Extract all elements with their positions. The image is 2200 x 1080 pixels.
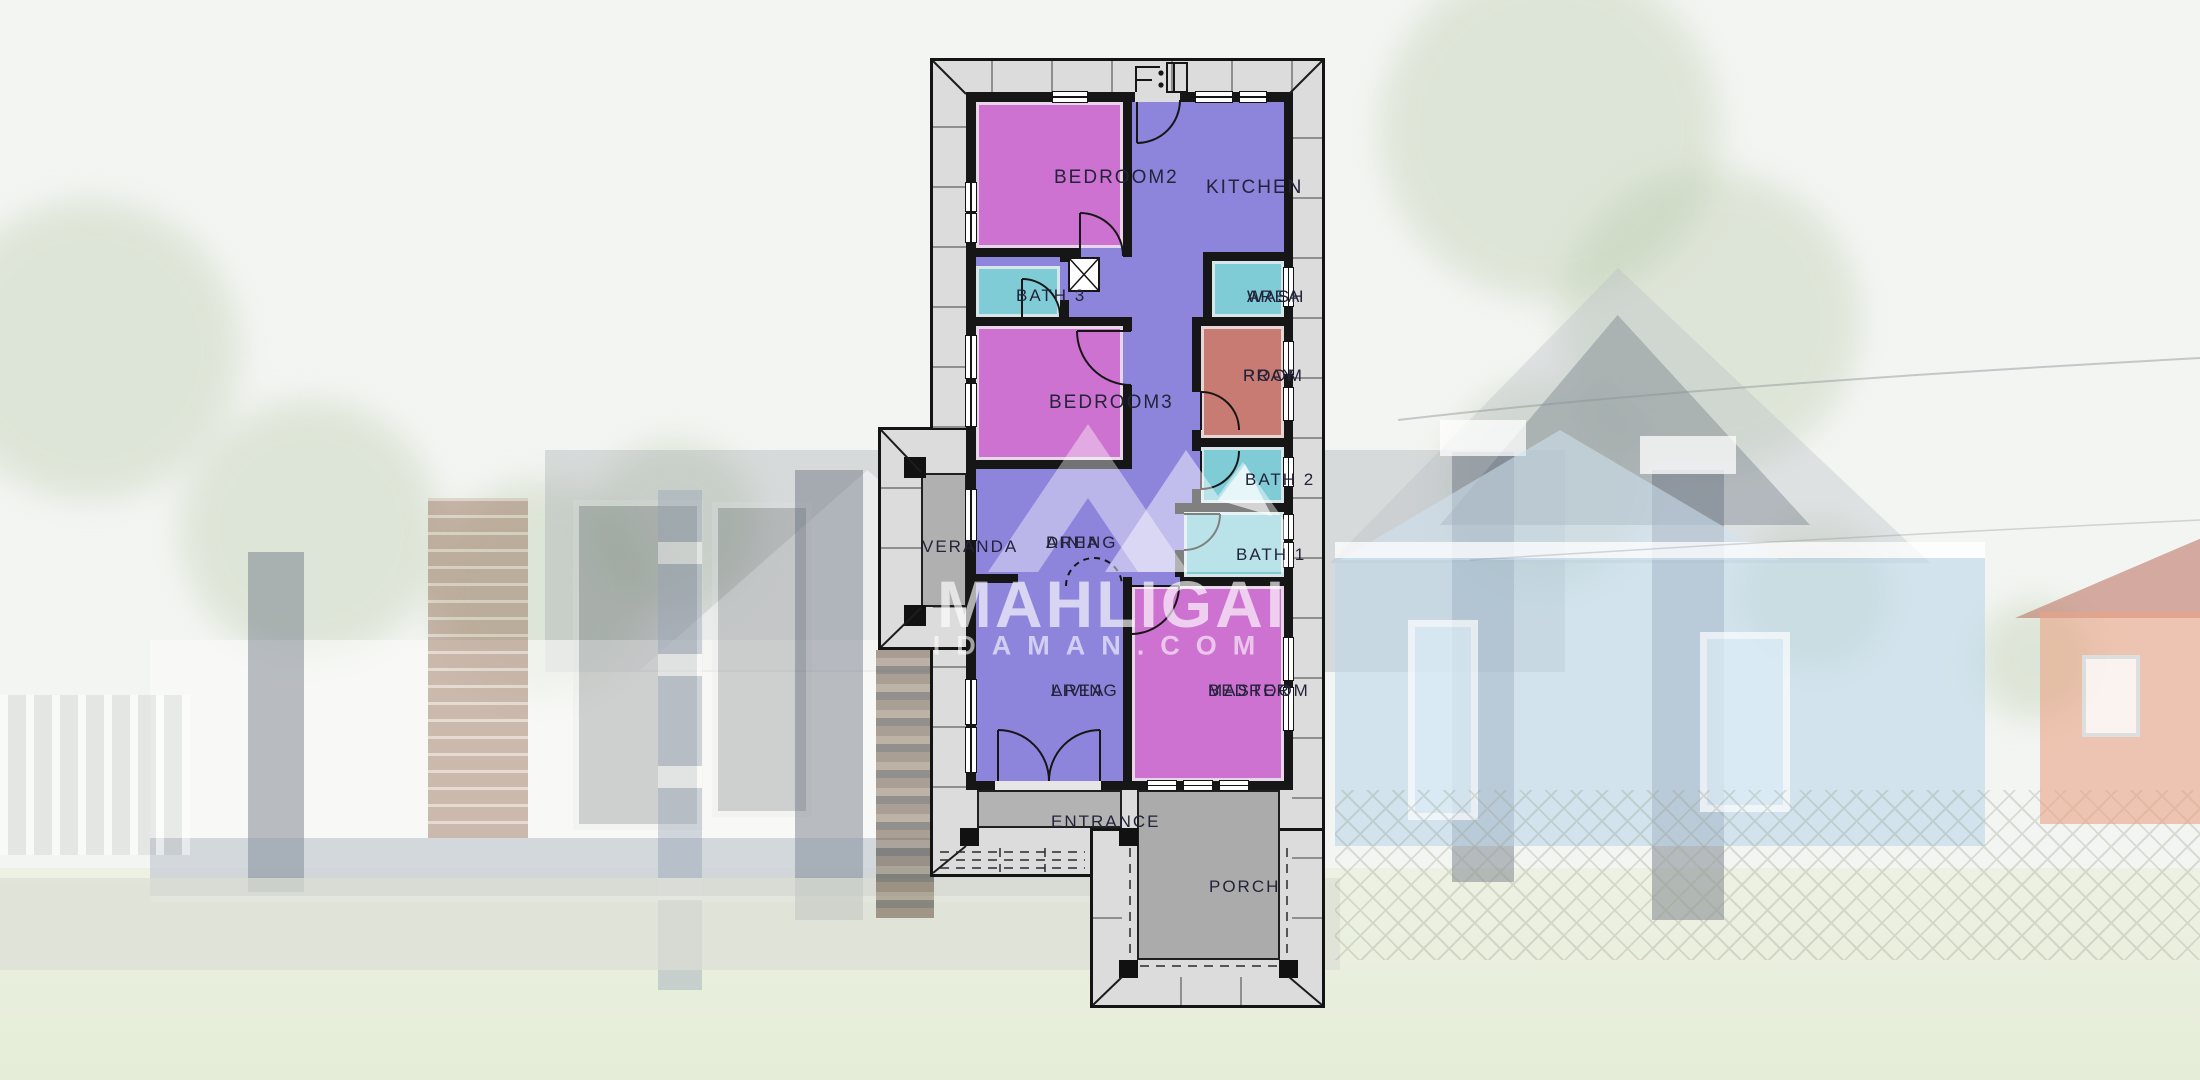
watermark-domain-text: IDAMAN.COM [933, 631, 1271, 662]
floor-plan-screenshot: MAHLIGAI IDAMAN.COM BEDROOM2 KITCHEN BAT… [0, 0, 2200, 1080]
floor-plan: MAHLIGAI IDAMAN.COM BEDROOM2 KITCHEN BAT… [0, 0, 2200, 1080]
